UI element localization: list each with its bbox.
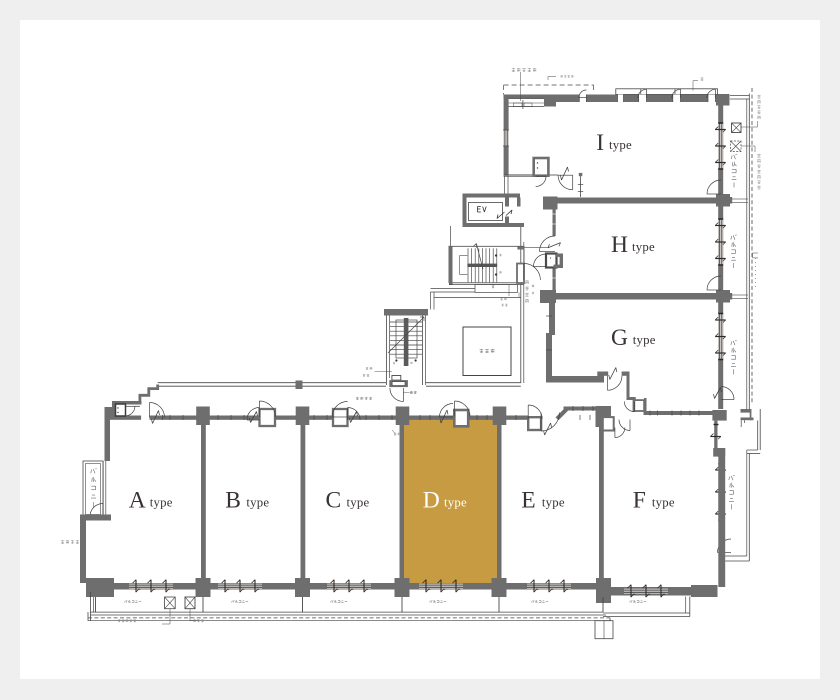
svg-text:A: A [129, 488, 146, 514]
svg-text:type: type [652, 496, 675, 510]
svg-text:type: type [347, 496, 370, 510]
svg-text:type: type [246, 496, 269, 510]
svg-text:I: I [596, 130, 604, 156]
svg-text:G: G [611, 325, 628, 351]
svg-text:B: B [225, 488, 241, 514]
svg-text:type: type [444, 496, 467, 510]
svg-text:H: H [611, 232, 628, 258]
svg-text:C: C [326, 488, 342, 514]
svg-text:type: type [632, 240, 655, 254]
svg-text:type: type [609, 138, 632, 152]
svg-text:D: D [423, 488, 440, 514]
svg-text:type: type [633, 333, 656, 347]
svg-text:F: F [633, 488, 646, 514]
svg-text:E: E [521, 488, 535, 514]
svg-text:type: type [150, 496, 173, 510]
svg-text:type: type [542, 496, 565, 510]
